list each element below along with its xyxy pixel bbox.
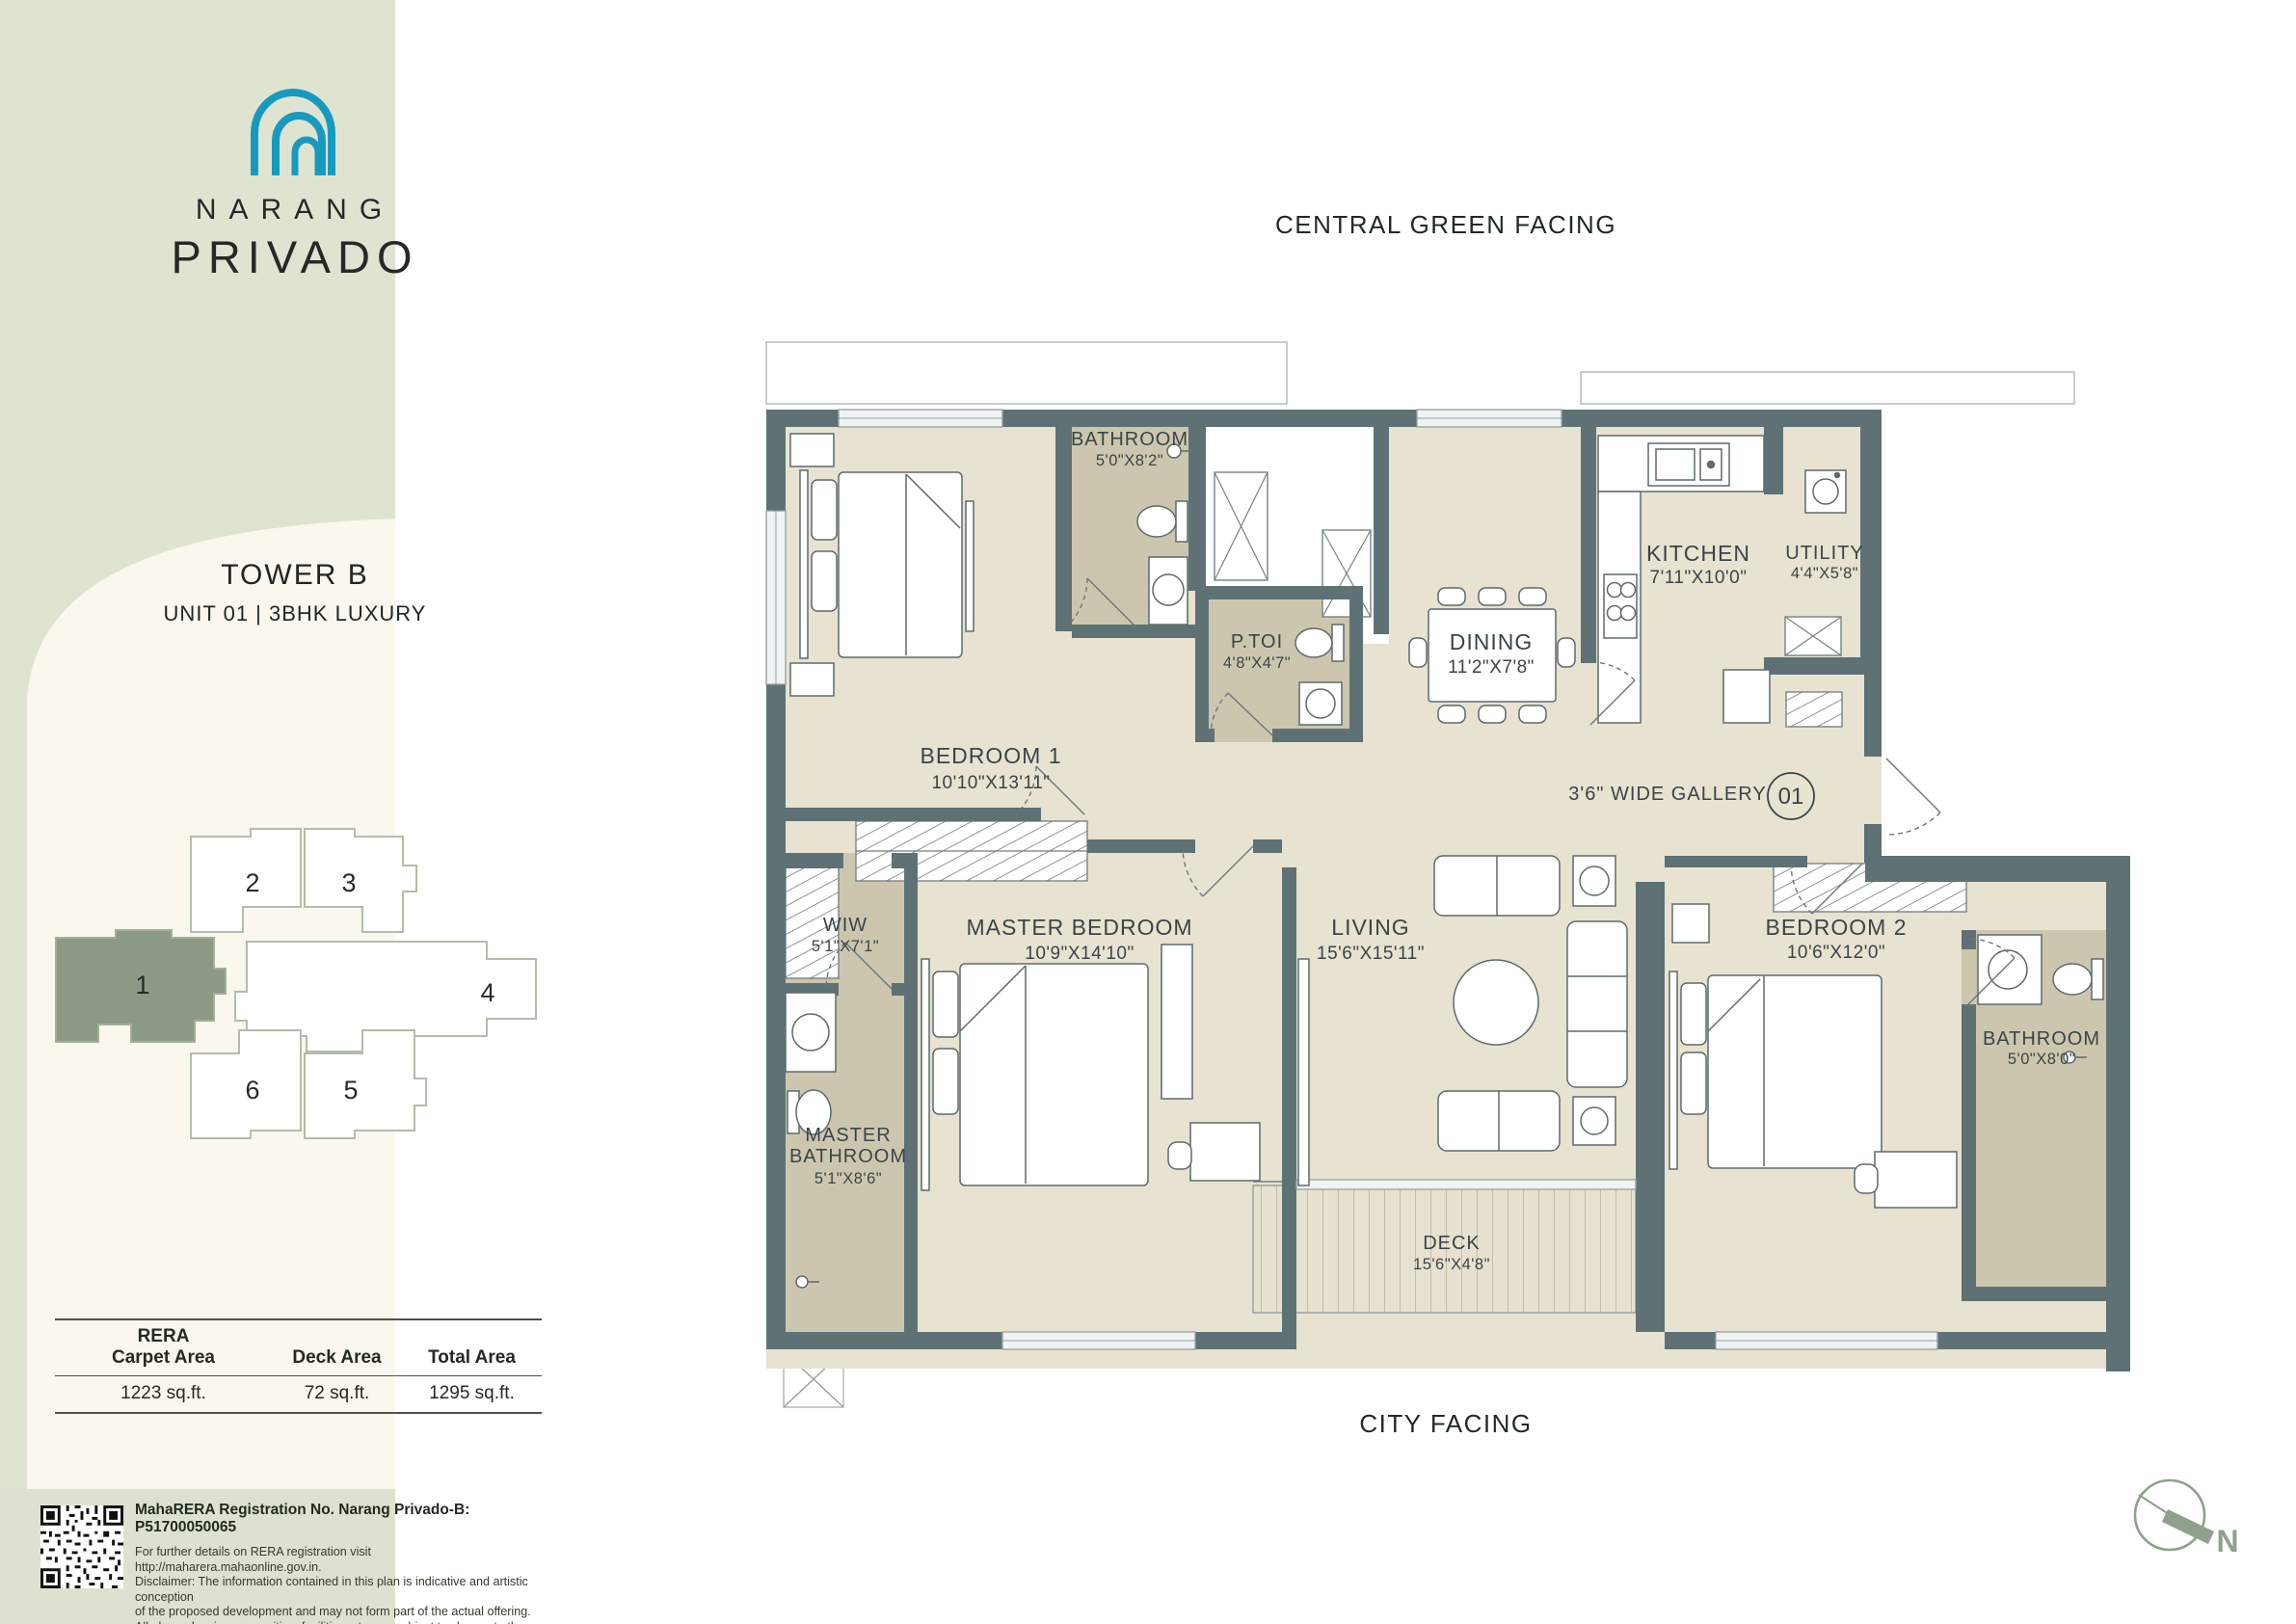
area-value-total: 1295 sq.ft. [402,1376,542,1414]
qr-code [40,1505,123,1588]
label-ptoi: P.TOI [1231,631,1283,652]
label-kitchen: KITCHEN [1646,541,1750,566]
area-col-rera: RERA Carpet Area [55,1326,272,1369]
label-wiw: WIW [823,915,868,936]
dims-dining: 11'2"X7'8" [1448,657,1535,678]
label-bedroom1: BEDROOM 1 [920,743,1061,768]
dims-living: 15'6"X15'11" [1317,944,1425,964]
label-master-bedroom: MASTER BEDROOM [966,915,1192,940]
label-dining: DINING [1450,629,1534,654]
brand-name-line1: NARANG [58,194,532,226]
legal-line: Disclaimer: The information contained in… [135,1575,559,1605]
key-plan: 1 2 3 4 5 6 [48,822,549,1145]
unit-heading: TOWER B UNIT 01 | 3BHK LUXURY [58,559,532,626]
dims-master-bedroom: 10'9"X14'10" [1025,944,1134,964]
floor-plan: 01 BEDROOM 1 10'10"X13'11" BATHROOM 5'0"… [752,328,2159,1426]
keyplan-label-6: 6 [245,1076,259,1105]
facing-label-top: CENTRAL GREEN FACING [1147,210,1745,240]
label-bathroom1: BATHROOM [1071,429,1188,450]
brand-block: NARANG PRIVADO [58,87,532,283]
dims-master-bathroom: 5'1"X8'6" [814,1170,882,1187]
dims-bedroom1: 10'10"X13'11" [931,773,1050,793]
brochure-page: NARANG PRIVADO TOWER B UNIT 01 | 3BHK LU… [0,0,2296,1624]
area-value-deck: 72 sq.ft. [272,1376,402,1414]
legal-line: of the proposed development and may not … [135,1605,559,1620]
legal-line: For further details on RERA registration… [135,1545,559,1575]
compass-icon: N [2116,1467,2270,1573]
area-col-total: Total Area [402,1326,542,1369]
dims-kitchen: 7'11"X10'0" [1650,568,1748,588]
label-deck: DECK [1423,1233,1481,1254]
brand-arch-logo-icon [247,87,343,175]
keyplan-label-1: 1 [135,971,149,999]
label-gallery: 3'6" WIDE GALLERY [1568,784,1766,805]
area-value-rera: 1223 sq.ft. [55,1376,272,1414]
keyplan-label-2: 2 [245,868,259,897]
keyplan-unit-3 [305,829,416,932]
legal-text: MahaRERA Registration No. Narang Privado… [135,1502,559,1624]
compass-n-label: N [2216,1524,2238,1558]
label-bathroom2: BATHROOM [1983,1028,2100,1050]
label-utility: UTILITY [1785,543,1863,564]
label-master-bathroom-2: BATHROOM [789,1146,907,1167]
dims-bathroom2: 5'0"X8'0" [2008,1051,2075,1068]
unit-subtitle: UNIT 01 | 3BHK LUXURY [58,601,532,626]
dims-utility: 4'4"X5'8" [1791,565,1858,582]
unit-badge-label: 01 [1778,784,1804,810]
dims-deck: 15'6"X4'8" [1413,1256,1490,1273]
dims-bathroom1: 5'0"X8'2" [1096,452,1163,469]
rera-registration: MahaRERA Registration No. Narang Privado… [135,1502,559,1536]
dims-ptoi: 4'8"X4'7" [1223,654,1291,672]
legal-line: All plans, drawings, amenities, faciliti… [135,1620,559,1624]
keyplan-label-3: 3 [341,868,356,897]
label-master-bathroom-1: MASTER [805,1125,891,1146]
dims-wiw: 5'1"X7'1" [812,938,879,955]
area-col-deck: Deck Area [272,1326,402,1369]
tower-title: TOWER B [58,559,532,592]
label-living: LIVING [1331,915,1409,940]
keyplan-label-5: 5 [343,1076,358,1105]
label-bedroom2: BEDROOM 2 [1765,915,1907,940]
keyplan-label-4: 4 [480,978,494,1007]
dims-bedroom2: 10'6"X12'0" [1787,943,1885,963]
brand-name-line2: PRIVADO [58,230,532,283]
area-table: RERA Carpet Area Deck Area Total Area 12… [55,1318,542,1414]
